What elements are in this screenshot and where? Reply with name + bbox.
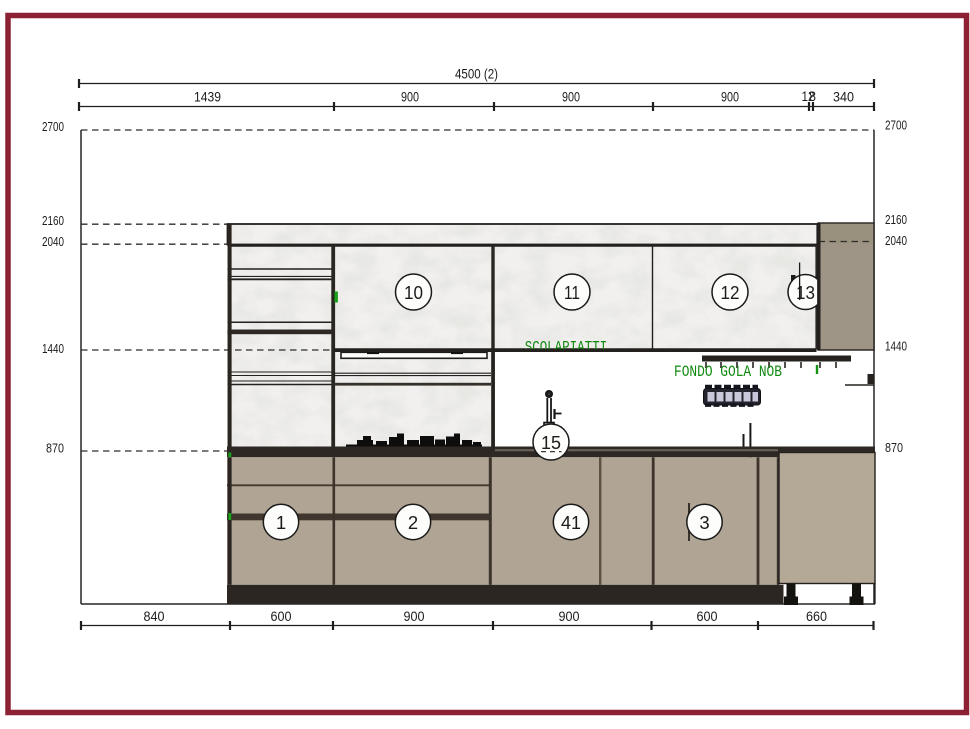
svg-text:SCOLAPIATTI: SCOLAPIATTI xyxy=(525,338,608,356)
svg-text:2160: 2160 xyxy=(885,212,907,227)
svg-text:8: 8 xyxy=(809,89,816,104)
svg-text:660: 660 xyxy=(806,609,827,624)
svg-text:41: 41 xyxy=(561,512,581,533)
svg-text:12: 12 xyxy=(721,282,740,303)
svg-text:900: 900 xyxy=(721,90,739,105)
svg-text:900: 900 xyxy=(404,609,425,624)
svg-text:13: 13 xyxy=(796,282,815,303)
svg-text:900: 900 xyxy=(401,90,419,105)
svg-text:600: 600 xyxy=(271,609,292,624)
svg-text:2040: 2040 xyxy=(42,234,64,249)
svg-text:2700: 2700 xyxy=(42,119,64,134)
svg-text:340: 340 xyxy=(833,90,854,105)
svg-text:1440: 1440 xyxy=(885,339,907,354)
svg-text:1: 1 xyxy=(276,512,286,533)
svg-text:2160: 2160 xyxy=(42,213,64,228)
svg-text:4500 (2): 4500 (2) xyxy=(455,67,498,82)
svg-text:2040: 2040 xyxy=(885,233,907,248)
svg-text:900: 900 xyxy=(562,90,580,105)
svg-text:FONDO GOLA NOB: FONDO GOLA NOB xyxy=(674,363,782,381)
svg-text:11: 11 xyxy=(564,282,580,303)
svg-text:2: 2 xyxy=(408,512,418,533)
svg-text:15: 15 xyxy=(541,432,561,453)
svg-text:3: 3 xyxy=(699,512,709,533)
svg-text:2700: 2700 xyxy=(885,118,907,133)
svg-text:10: 10 xyxy=(404,282,423,303)
svg-text:600: 600 xyxy=(697,609,718,624)
svg-text:870: 870 xyxy=(46,441,64,456)
svg-text:1440: 1440 xyxy=(42,341,64,356)
svg-text:870: 870 xyxy=(885,440,903,455)
svg-text:900: 900 xyxy=(559,609,580,624)
svg-text:1439: 1439 xyxy=(194,90,221,105)
svg-text:840: 840 xyxy=(144,609,165,624)
